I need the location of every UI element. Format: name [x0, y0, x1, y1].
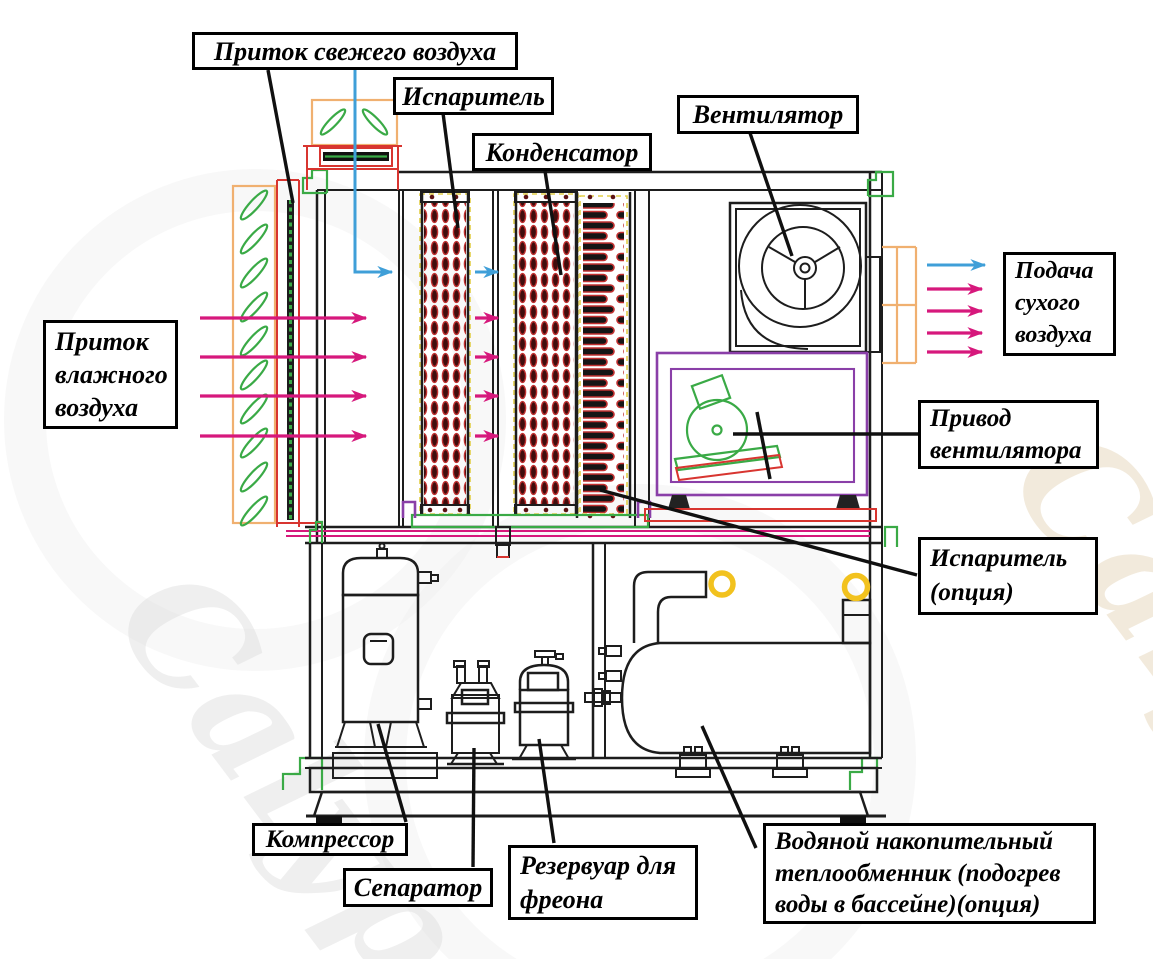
label-condenser: Конденсатор	[472, 133, 652, 171]
humid-air-arrows	[200, 318, 366, 436]
optional-evaporator-coil-drawing	[577, 192, 630, 518]
humid-air-louver	[233, 180, 299, 528]
tank-mount	[773, 747, 807, 777]
fan-drawing	[730, 203, 880, 352]
fresh-air-intake-louver	[303, 100, 402, 190]
fan-drive-drawing	[645, 353, 876, 521]
label-evaporator: Испаритель	[393, 77, 554, 115]
fan-drive-motor	[675, 375, 782, 480]
label-evaporator-option: Испаритель (опция)	[918, 537, 1098, 615]
label-freon-tank: Резервуар для фреона	[508, 845, 698, 920]
outlet-duct	[882, 247, 916, 363]
evaporator-coil-drawing	[420, 192, 470, 515]
label-humid-air: Приток влажного воздуха	[43, 320, 178, 429]
dry-air-arrows	[927, 265, 985, 352]
label-water-heat-exchanger: Водяной накопительный теплообменник (под…	[763, 823, 1096, 924]
dehumidifier-diagram: Calypso Calypso	[0, 0, 1153, 959]
label-fan-drive: Привод вентилятора	[918, 400, 1099, 469]
label-fresh-air: Приток свежего воздуха	[192, 32, 518, 70]
label-dry-air: Подача сухого воздуха	[1003, 252, 1116, 356]
tank-mount	[676, 747, 710, 777]
air-filter-strip	[287, 200, 294, 520]
condenser-coil-drawing	[514, 192, 578, 515]
label-compressor: Компрессор	[252, 823, 408, 856]
label-separator: Сепаратор	[343, 868, 493, 907]
label-fan: Вентилятор	[677, 95, 859, 134]
freon-tank-drawing	[512, 651, 576, 759]
